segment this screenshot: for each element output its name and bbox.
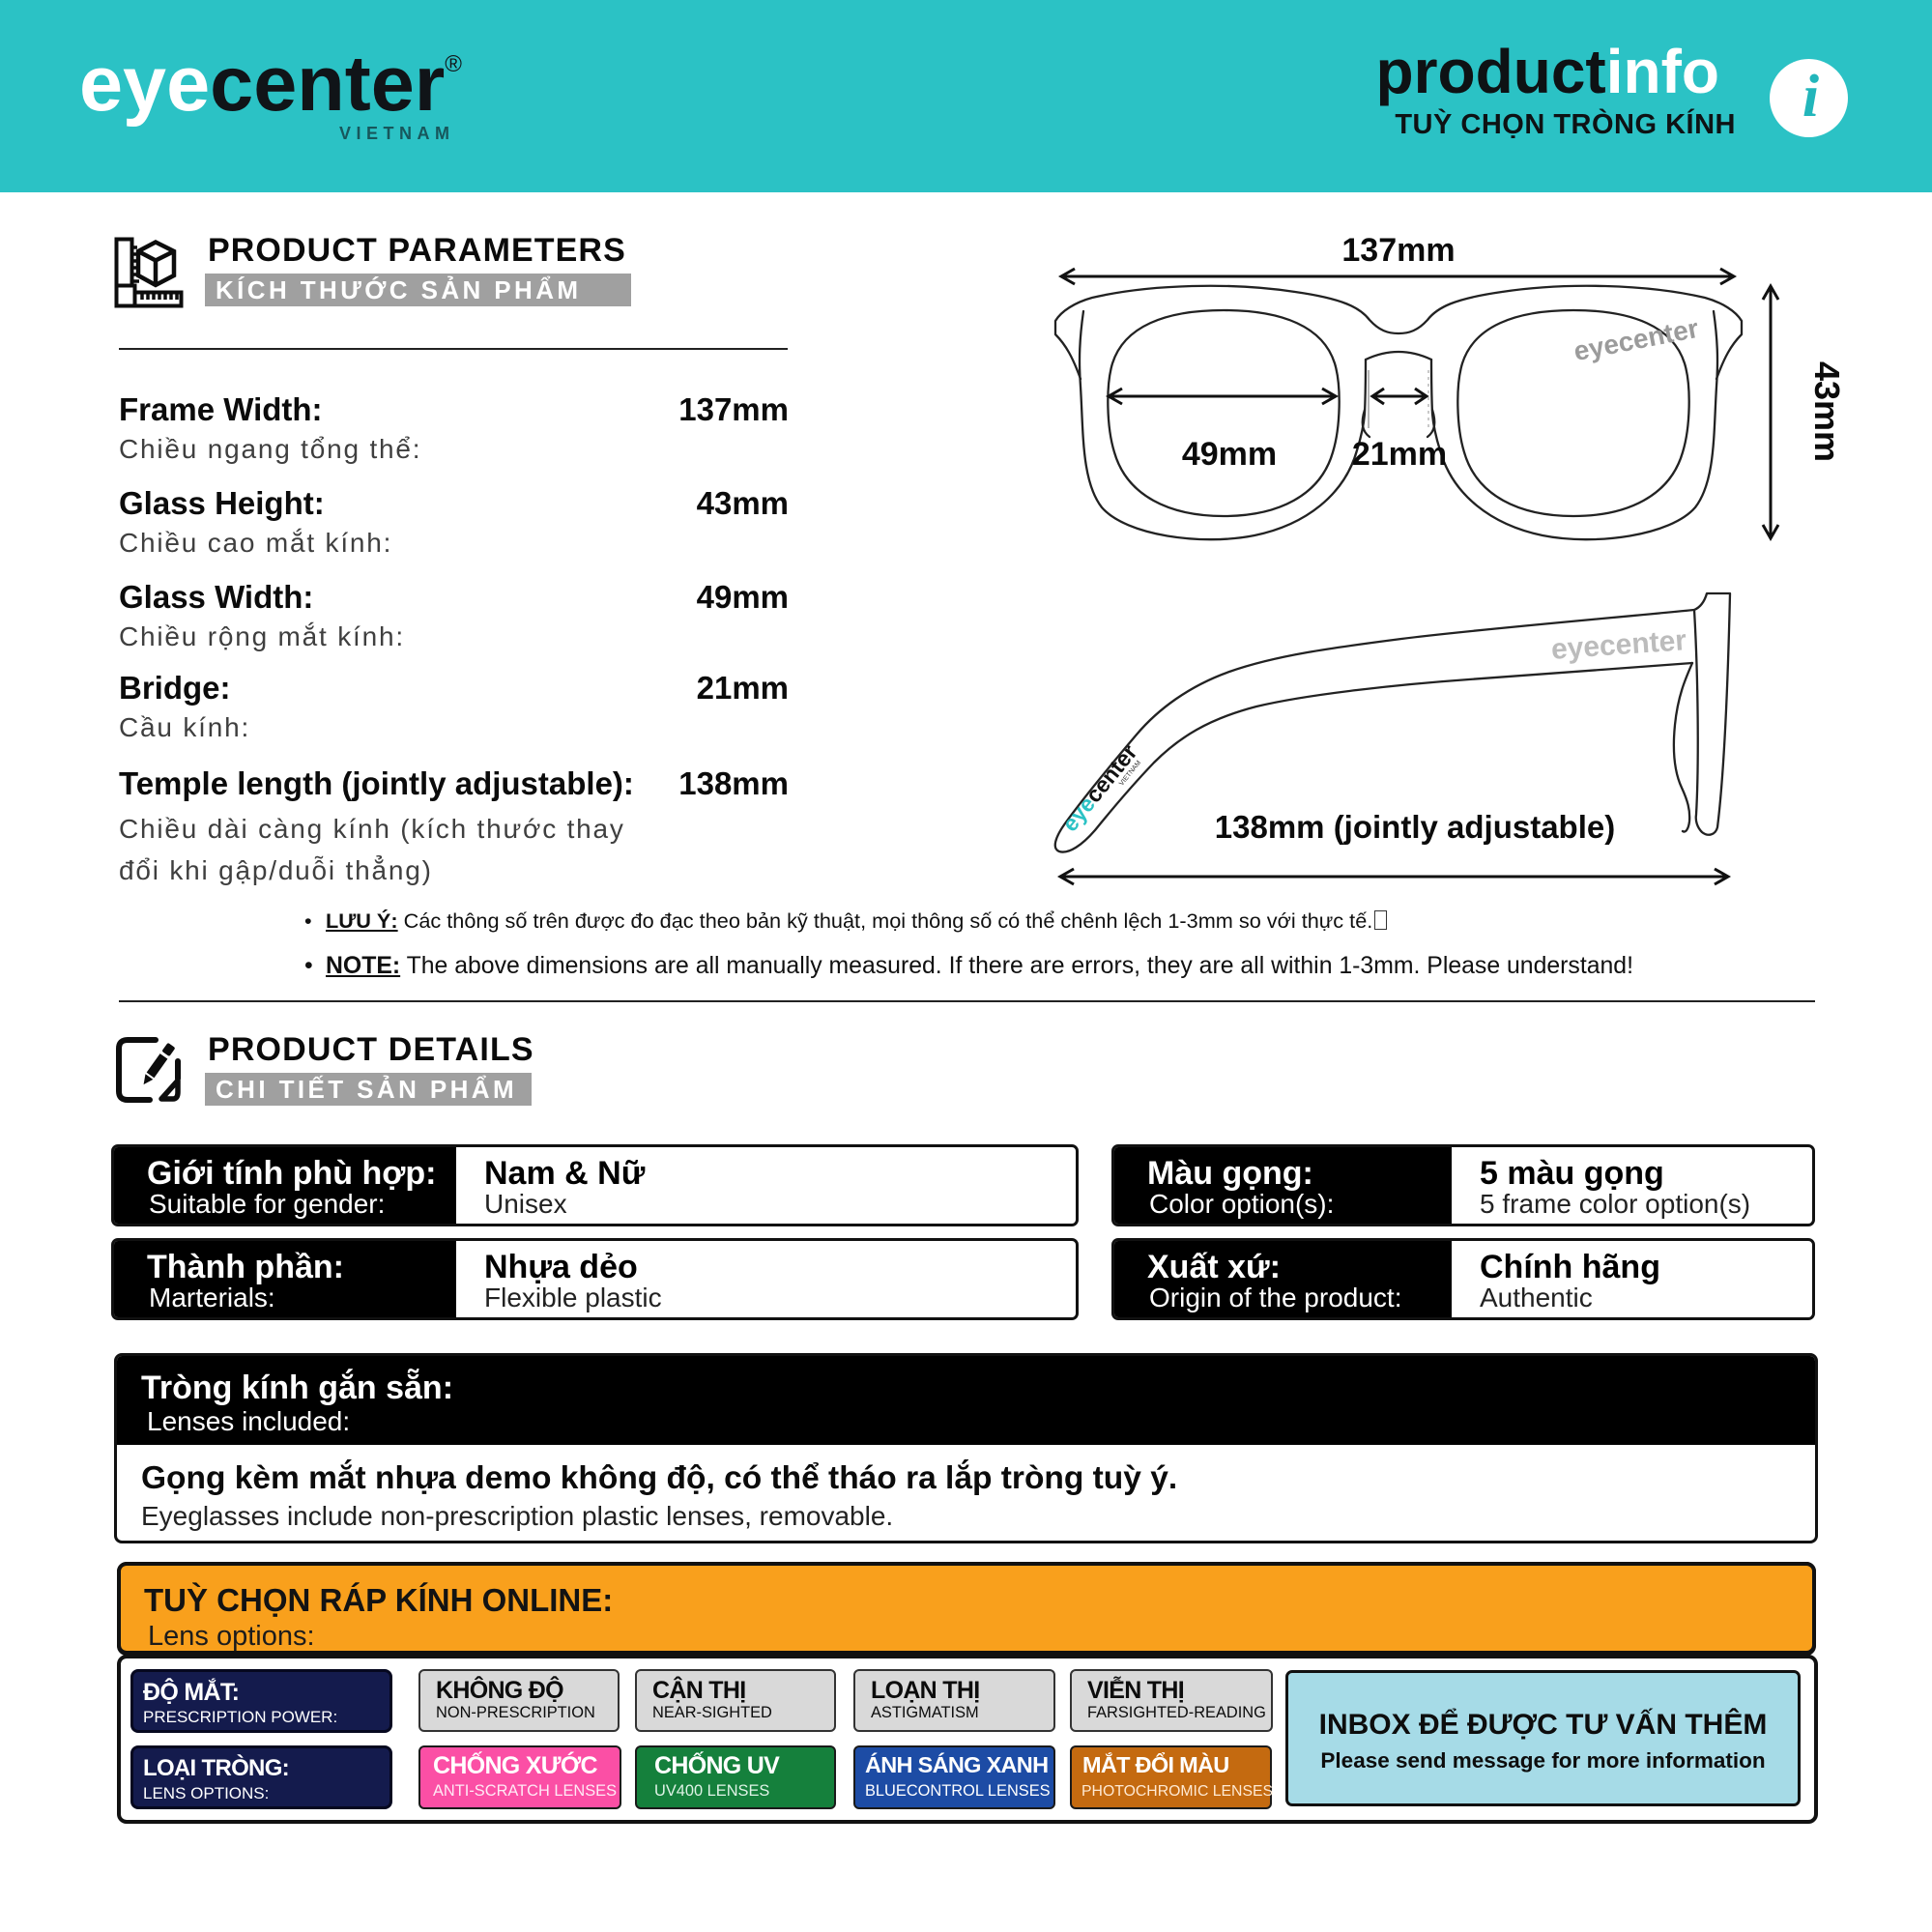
svg-text:eyecenter: eyecenter: [1057, 739, 1142, 836]
svg-text:49mm: 49mm: [1182, 436, 1277, 473]
svg-text:21mm: 21mm: [1352, 436, 1447, 473]
svg-text:eyecenter: eyecenter: [1550, 624, 1687, 666]
svg-text:137mm: 137mm: [1341, 232, 1455, 269]
svg-text:43mm: 43mm: [1807, 361, 1847, 462]
svg-text:138mm (jointly adjustable): 138mm (jointly adjustable): [1215, 809, 1615, 845]
